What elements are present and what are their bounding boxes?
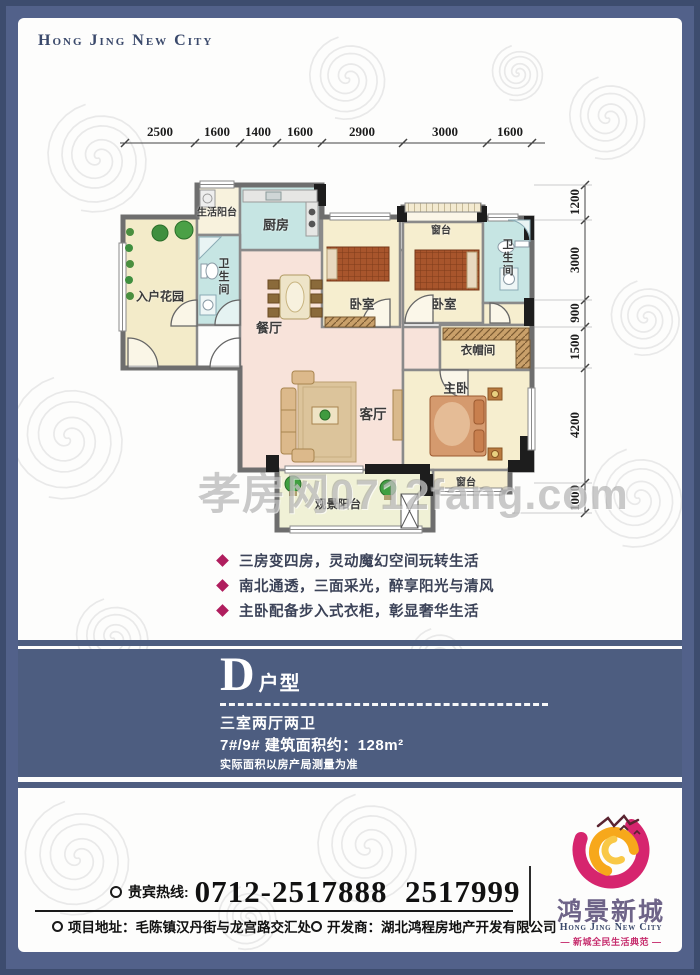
diamond-bullet-icon <box>216 579 229 592</box>
diamond-bullet-icon <box>216 604 229 617</box>
ring-bullet-icon <box>52 921 63 932</box>
dim-right-2: 3000 <box>567 247 583 273</box>
dim-top-4: 1600 <box>287 124 313 140</box>
logo-divider <box>529 866 531 926</box>
dim-top-7: 1600 <box>497 124 523 140</box>
label-bedroom2: 卧室 <box>431 294 456 313</box>
feature-item: 主卧配备步入式衣柜，彰显奢华生活 <box>218 598 494 623</box>
dim-top-3: 1400 <box>245 124 271 140</box>
logo-block: 鸿景新城 Hong Jing New City — 新城全民生活典范 — <box>536 806 686 899</box>
label-bathroom2: 卫生间 <box>499 239 515 278</box>
bed-bedroom2 <box>415 250 479 290</box>
hotline-row: 贵宾热线: 0712-2517888 2517999 <box>110 876 521 907</box>
dim-right-3: 900 <box>567 303 583 323</box>
dim-top-1: 2500 <box>147 124 173 140</box>
unit-letter: D <box>220 651 255 699</box>
label-dining: 餐厅 <box>256 318 282 337</box>
feature-item: 三房变四房，灵动魔幻空间玩转生活 <box>218 548 494 573</box>
room-layout-text: 三室两厅两卫 <box>220 712 316 733</box>
feature-list: 三房变四房，灵动魔幻空间玩转生活 南北通透，三面采光，醉享阳光与清风 主卧配备步… <box>218 548 494 623</box>
dim-top-5: 2900 <box>349 124 375 140</box>
developer-label: 开发商： <box>327 916 381 936</box>
dim-top-6: 3000 <box>432 124 458 140</box>
logo-brand-en: Hong Jing New City <box>536 922 686 933</box>
label-bedroom1: 卧室 <box>349 294 374 313</box>
flyer-page: Hong Jing New City <box>0 0 700 975</box>
logo-tagline: — 新城全民生活典范 — <box>536 935 686 948</box>
label-master: 主卧 <box>443 378 468 397</box>
feature-text: 主卧配备步入式衣柜，彰显奢华生活 <box>239 600 479 621</box>
developer-info: 开发商： 湖北鸿程房地产开发有限公司 <box>311 916 557 936</box>
address-row: 项目地址： 毛陈镇汉丹街与龙宫路交汇处 开发商： 湖北鸿程房地产开发有限公司 <box>52 916 514 936</box>
unit-type-title: D 户型 <box>220 651 301 699</box>
phoenix-logo-icon <box>536 806 686 894</box>
unit-type-band: D 户型 三室两厅两卫 7#/9# 建筑面积约：128m² 实际面积以房产局测量… <box>18 649 682 777</box>
project-address: 项目地址： 毛陈镇汉丹街与龙宫路交汇处 <box>52 916 311 936</box>
feature-text: 南北通透，三面采光，醉享阳光与清风 <box>239 575 494 596</box>
dim-right-1: 1200 <box>567 189 583 215</box>
building-area-text: 7#/9# 建筑面积约：128m² <box>220 734 404 755</box>
band-bottom-stripe <box>18 782 682 788</box>
label-bathroom1: 卫生间 <box>215 258 231 297</box>
hotline-numbers: 0712-2517888 2517999 <box>195 876 521 907</box>
address-value: 毛陈镇汉丹街与龙宫路交汇处 <box>136 916 312 936</box>
label-service-balcony: 生活阳台 <box>197 204 237 219</box>
dashed-divider <box>220 703 548 706</box>
label-living: 客厅 <box>360 403 387 423</box>
footer-divider <box>35 910 513 912</box>
dim-right-5: 4200 <box>567 412 583 438</box>
dim-top-2: 1600 <box>204 124 230 140</box>
dining-set <box>268 275 322 319</box>
diamond-bullet-icon <box>216 554 229 567</box>
hotline-label: 贵宾热线: <box>128 882 189 902</box>
label-kitchen: 厨房 <box>263 215 289 234</box>
feature-item: 南北通透，三面采光，醉享阳光与清风 <box>218 573 494 598</box>
dim-right-4: 1500 <box>567 334 583 360</box>
label-entry-garden: 入户花园 <box>136 288 184 305</box>
ring-bullet-icon <box>110 886 122 898</box>
band-top-stripe <box>18 640 682 646</box>
label-bay1: 窗台 <box>431 222 451 237</box>
watermark: 孝房网0712fang.com <box>198 460 629 522</box>
unit-suffix: 户型 <box>259 667 301 696</box>
feature-text: 三房变四房，灵动魔幻空间玩转生活 <box>239 550 479 571</box>
address-label: 项目地址： <box>68 916 136 936</box>
area-disclaimer: 实际面积以房产局测量为准 <box>220 756 358 772</box>
label-cloakroom: 衣帽间 <box>461 342 496 358</box>
ring-bullet-icon <box>311 921 322 932</box>
